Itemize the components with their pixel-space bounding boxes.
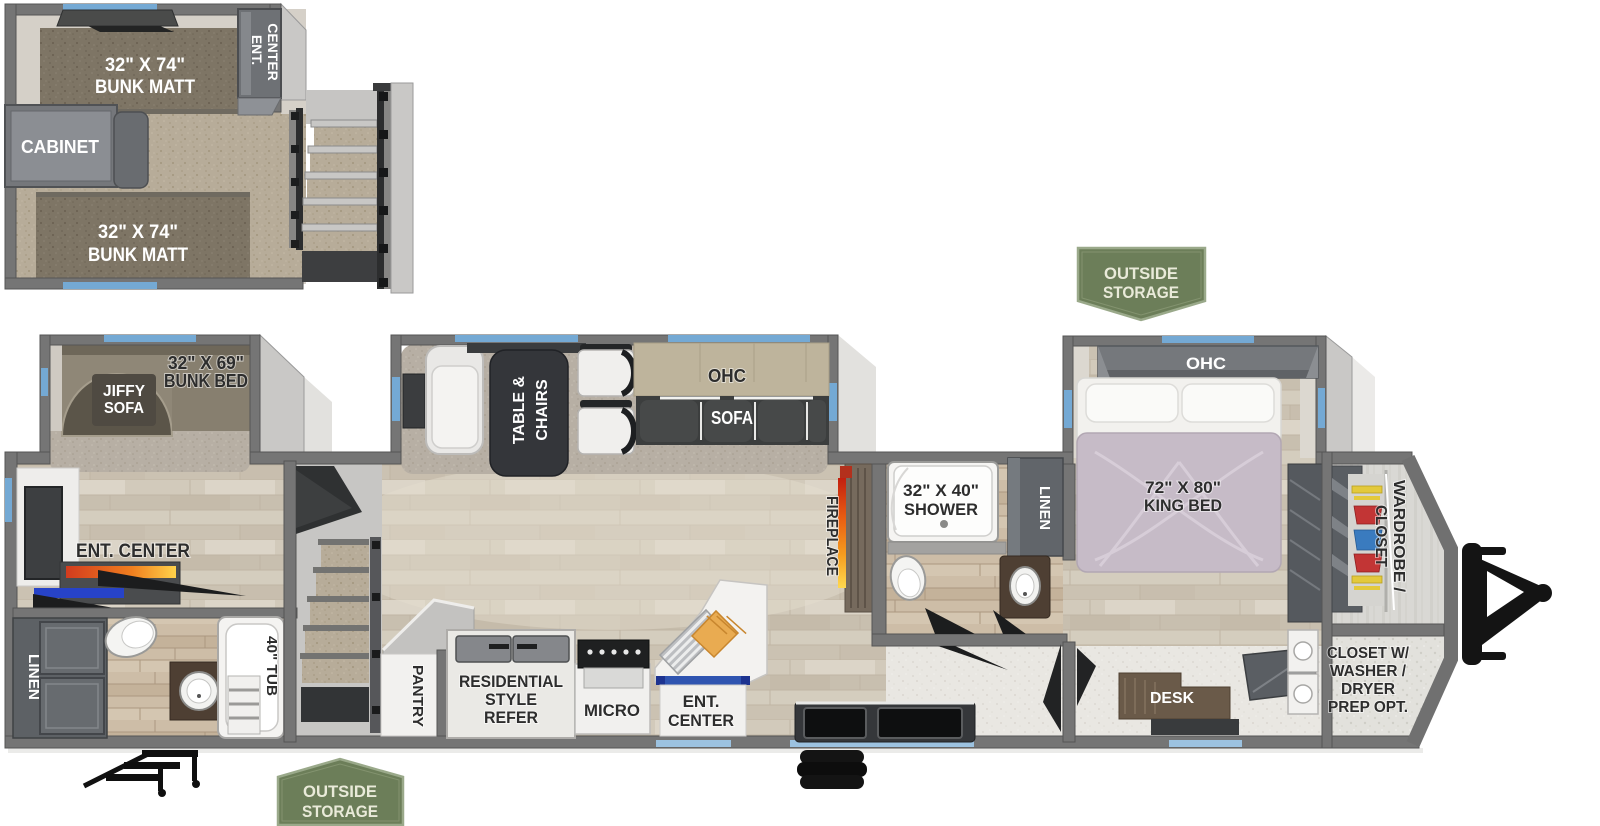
svg-text:MICRO: MICRO [584,701,640,720]
svg-text:SHOWER: SHOWER [904,500,978,519]
svg-text:LINEN: LINEN [1036,486,1053,530]
svg-text:PREP OPT.: PREP OPT. [1328,699,1408,716]
svg-text:DRYER: DRYER [1341,681,1395,698]
svg-text:40" TUB: 40" TUB [263,636,280,696]
svg-text:CLOSET: CLOSET [1372,505,1389,567]
svg-text:REFER: REFER [484,708,538,727]
svg-text:RESIDENTIAL: RESIDENTIAL [459,672,563,691]
svg-text:BUNK BED: BUNK BED [164,371,248,391]
svg-text:ENT.: ENT. [683,692,720,711]
svg-text:OUTSIDE: OUTSIDE [303,782,377,801]
svg-text:72" X 80": 72" X 80" [1145,478,1221,497]
svg-text:32" X 69": 32" X 69" [168,353,244,373]
svg-text:BUNK MATT: BUNK MATT [95,77,195,98]
svg-text:SOFA: SOFA [104,400,144,417]
svg-text:TABLE &: TABLE & [511,375,528,444]
svg-text:CENTER: CENTER [668,711,734,730]
svg-text:JIFFY: JIFFY [103,383,145,400]
svg-text:FIREPLACE: FIREPLACE [823,496,840,576]
svg-text:CLOSET W/: CLOSET W/ [1327,645,1410,662]
svg-text:LINEN: LINEN [25,654,42,700]
svg-text:PANTRY: PANTRY [409,665,426,727]
svg-text:CENTER: CENTER [265,23,281,81]
svg-text:32" X 40": 32" X 40" [903,481,979,500]
svg-text:CABINET: CABINET [21,137,99,157]
svg-text:32" X 74": 32" X 74" [105,55,185,76]
svg-text:OHC: OHC [708,366,746,386]
svg-text:ENT.: ENT. [249,35,265,65]
svg-text:BUNK MATT: BUNK MATT [88,245,188,266]
svg-text:STORAGE: STORAGE [302,802,378,821]
svg-text:CHAIRS: CHAIRS [534,379,551,441]
svg-text:DESK: DESK [1150,690,1194,707]
svg-text:OHC: OHC [1186,354,1226,373]
svg-text:SOFA: SOFA [711,408,753,428]
svg-text:STYLE: STYLE [485,690,537,709]
svg-text:WASHER /: WASHER / [1330,663,1407,680]
svg-text:ENT. CENTER: ENT. CENTER [76,541,190,562]
svg-text:KING BED: KING BED [1144,496,1222,515]
svg-text:STORAGE: STORAGE [1103,283,1179,302]
svg-text:OUTSIDE: OUTSIDE [1104,264,1178,283]
svg-text:32" X 74": 32" X 74" [98,222,178,243]
